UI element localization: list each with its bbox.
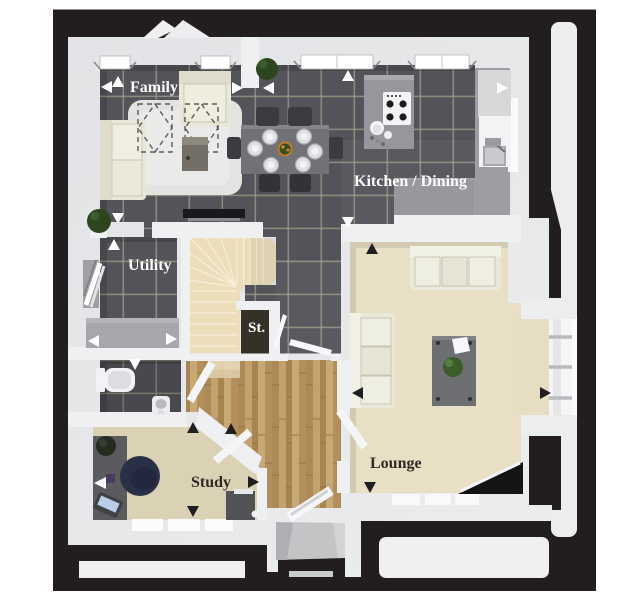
svg-text:St.: St. (248, 320, 265, 336)
svg-text:Study: Study (191, 474, 231, 491)
svg-text:Kitchen / Dining: Kitchen / Dining (354, 173, 467, 190)
svg-text:Utility: Utility (128, 257, 172, 274)
svg-text:Family: Family (130, 79, 178, 96)
svg-text:Lounge: Lounge (370, 455, 422, 472)
